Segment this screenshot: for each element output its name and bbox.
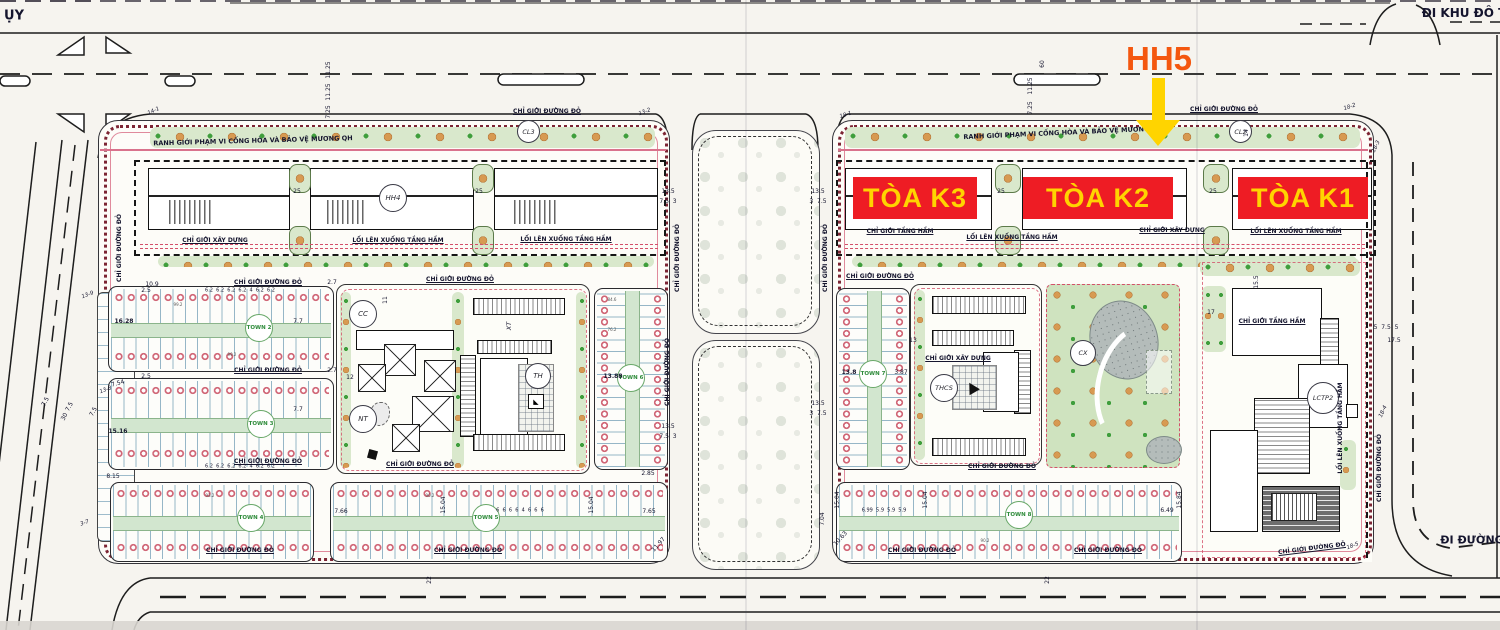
th-slab [473, 434, 565, 451]
slab-detail-line [495, 195, 657, 197]
lctp2-striped-building [1254, 398, 1310, 474]
nt-circle: NT [349, 405, 377, 433]
tree-pocket [1203, 226, 1229, 255]
nt-pavilion [358, 364, 386, 392]
hh5-arrow-stem [1152, 78, 1165, 122]
nt-pavilion [392, 424, 420, 452]
sheet-fold-line [1196, 0, 1198, 630]
cl2-circle: CL2 [1229, 120, 1252, 143]
town-2-label: TOWN 2 [245, 314, 273, 342]
town-block-4 [110, 482, 314, 562]
lot-circles-col [894, 293, 905, 465]
lot-circles-row [115, 542, 309, 553]
lot-circles-col [841, 293, 852, 465]
central-park-north-boundary [698, 136, 812, 326]
park-plaza [1146, 350, 1172, 394]
lot-circles-row [841, 542, 1177, 553]
town-block-2 [108, 286, 334, 372]
town-8-label: TOWN 8 [1005, 501, 1033, 529]
tree-pocket [995, 164, 1021, 193]
th-slab [473, 298, 565, 315]
thcs-slab [932, 438, 1026, 456]
basement-ramp-line [845, 248, 1365, 249]
planning-boundary-dashed-line [0, 0, 1500, 2]
lctp2-circle: LCTP2 [1307, 382, 1339, 414]
toa-k2-highlight: TÒA K2 [1023, 177, 1173, 219]
basement-ramp-line [140, 248, 658, 249]
lot-circles-row [113, 448, 329, 459]
tree-pocket [1203, 164, 1229, 193]
town-5-label: TOWN 5 [472, 504, 500, 532]
lot-circles-row [335, 542, 663, 553]
right-green-buffer [845, 127, 1360, 148]
town-4-label: TOWN 4 [237, 504, 265, 532]
town-7-label: TOWN 7 [859, 360, 887, 388]
lctp2-building-2 [1210, 430, 1258, 532]
th-circle: TH [525, 363, 551, 389]
hh5-arrow-icon [1136, 120, 1180, 146]
lctp2-basement-boundary [1366, 162, 1368, 558]
basement-ramp-line [140, 244, 658, 245]
hh5-highlight-label: HH5 [1126, 40, 1192, 78]
nt-pavilion [424, 360, 456, 392]
thcs-slab [932, 296, 1026, 314]
planning-boundary-dashed-line [0, 0, 98, 2]
cx-circle: CX [1070, 340, 1096, 366]
left-green-strip [158, 256, 654, 267]
lot-circles-row [841, 488, 1177, 499]
ramp-hatch [169, 200, 211, 224]
lctp2-striped-slab [1320, 318, 1339, 366]
ramp-hatch [514, 200, 556, 224]
town-3-label: TOWN 3 [247, 410, 275, 438]
tree-pocket [472, 164, 494, 193]
cc-circle: CC [349, 300, 377, 328]
roof-inset [1271, 493, 1317, 521]
canal-protection-line [838, 149, 1368, 151]
green-strip [111, 418, 331, 433]
tree-pocket [995, 226, 1021, 255]
slab-detail-line [149, 195, 289, 197]
green-strip [111, 323, 331, 338]
tree-pocket [289, 164, 311, 193]
town-6-label: TOWN 6 [617, 364, 645, 392]
sheet-fold-line [745, 0, 747, 630]
hh4-slab-3 [494, 168, 658, 230]
lot-circles-row [113, 351, 329, 362]
hh4-slab-1 [148, 168, 290, 230]
canal-protection-line [100, 149, 666, 151]
lot-circles-row [113, 385, 329, 396]
nt-pavilion [384, 344, 416, 376]
lctp2-dark-roof-building [1262, 486, 1340, 532]
lot-circles-row [335, 488, 663, 499]
left-green-buffer [150, 127, 655, 148]
central-park-south-boundary [698, 346, 812, 562]
ramp-hatch [327, 200, 366, 224]
lot-circles-row [115, 488, 309, 499]
th-slab-vertical [460, 355, 476, 437]
lot-circles-col [652, 293, 663, 465]
thcs-slab [932, 330, 1014, 346]
tree-pocket [289, 226, 311, 255]
cl3-circle: CL3 [517, 120, 540, 143]
lot-circles-row [113, 292, 329, 303]
toa-k1-highlight: TÒA K1 [1238, 177, 1368, 219]
hh4-circle: HH4 [379, 184, 407, 212]
th-slab [477, 340, 552, 354]
lctp2-building-1 [1232, 288, 1322, 356]
lctp2-notch [1346, 404, 1358, 418]
tree-pocket [472, 226, 494, 255]
town-block-3 [108, 378, 334, 470]
th-flag-symbol: ◣ [528, 394, 544, 409]
toa-k3-highlight: TÒA K3 [853, 177, 977, 219]
site-plan-canvas: CL3 HH4 TOWN 2 TOWN 3 CC [0, 0, 1500, 630]
green-strip [113, 516, 311, 531]
basement-ramp-line [845, 244, 1365, 245]
lot-circles-col [599, 293, 610, 465]
thcs-circle: THCS [930, 374, 958, 402]
